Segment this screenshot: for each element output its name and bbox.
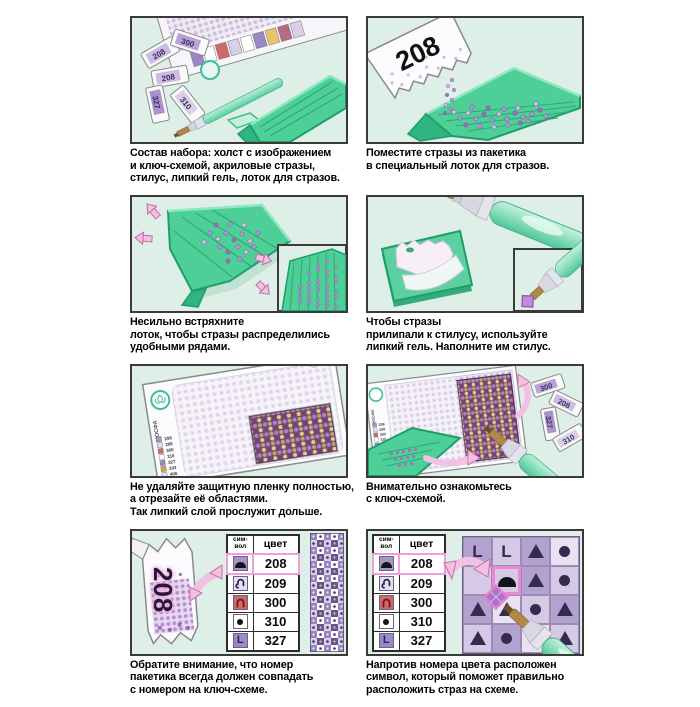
key-row-209: 209 <box>227 574 299 594</box>
match-arrow-icon <box>188 561 224 601</box>
letter-l-icon: L <box>237 635 244 646</box>
scheme-strip <box>310 533 344 652</box>
letter-l-icon: L <box>530 630 540 647</box>
pour-beads-illustration: 208 <box>368 18 582 142</box>
step-panel-3-shake-tray <box>130 195 348 313</box>
dot-icon <box>501 633 512 644</box>
key-row-310: 310 <box>373 612 445 631</box>
protective-film-illustration: МОСФА 208 209 300 310 327 333 406 550 <box>132 366 346 476</box>
match-arrow-icon <box>442 547 492 581</box>
key-row-209: 209 <box>373 574 445 594</box>
diamond-bead-icon <box>522 295 534 307</box>
key-table-header-color: цвет <box>399 535 445 554</box>
caption-step-7: Обратите внимание, что номер пакетика вс… <box>130 659 356 697</box>
caption-step-3: Несильно встряхните лоток, чтобы стразы … <box>130 316 356 354</box>
triangle-icon <box>557 602 573 616</box>
study-key-illustration: МОСФА 208 209 300 310 327 333 406 550 <box>368 366 582 476</box>
instruction-sheet: 208 300 208 327 <box>130 16 590 707</box>
caption-step-1: Состав набора: холст с изображением и кл… <box>130 147 356 185</box>
step-panel-4-glue-gel <box>366 195 584 313</box>
kit-contents-illustration: 208 300 208 327 <box>132 18 346 142</box>
key-row-208: 208 <box>373 554 445 574</box>
row-3: МОСФА 208 209 300 310 327 333 406 550 <box>130 364 590 519</box>
letter-l-icon: L <box>383 635 390 646</box>
key-row-300: 300 <box>227 593 299 612</box>
triangle-icon <box>557 631 573 645</box>
brand-logo-icon <box>201 61 219 79</box>
key-row-327: L 327 <box>227 631 299 651</box>
caption-step-8: Напротив номера цвета расположен символ,… <box>366 659 592 697</box>
hook-icon <box>381 578 392 589</box>
hook-icon <box>235 578 246 589</box>
step-panel-6-study-key: МОСФА 208 209 300 310 327 333 406 550 <box>366 364 584 478</box>
dot-icon <box>530 604 541 615</box>
triangle-icon <box>499 602 515 616</box>
dome-icon <box>498 577 516 587</box>
step-panel-1-kit-contents: 208 300 208 327 <box>130 16 348 144</box>
glue-gel-illustration <box>368 197 582 311</box>
triangle-icon <box>528 573 544 587</box>
key-row-208: 208 <box>227 554 299 574</box>
dot-icon <box>559 575 570 586</box>
color-key-table: сим- вол цвет 208 209 <box>226 534 300 652</box>
key-table-header-symbol: сим- вол <box>227 535 253 554</box>
dot-icon <box>237 619 243 625</box>
svg-text:208: 208 <box>378 422 384 427</box>
svg-text:209: 209 <box>379 427 385 432</box>
dot-icon <box>559 546 570 557</box>
dome-icon <box>235 562 246 568</box>
dome-icon <box>381 562 392 568</box>
letter-l-icon: L <box>501 543 511 560</box>
highlighted-cell <box>492 566 521 595</box>
caption-step-4: Чтобы стразы прилипали к стилусу, исполь… <box>366 316 592 354</box>
inset-tray-rows <box>278 245 346 311</box>
brand-logo-icon <box>369 387 383 401</box>
arch-icon <box>381 597 392 608</box>
svg-text:300: 300 <box>380 432 386 437</box>
step-panel-7-packet-matches-key: 208 сим- вол цвет 208 <box>130 529 348 656</box>
svg-text:406: 406 <box>170 470 179 475</box>
caption-step-5: Не удаляйте защитную пленку полностью, а… <box>130 481 356 519</box>
key-table-header-symbol: сим- вол <box>373 535 399 554</box>
shake-tray-illustration <box>132 197 346 311</box>
triangle-icon <box>528 544 544 558</box>
step-panel-8-symbol-placement: сим- вол цвет 208 209 <box>366 529 584 656</box>
dot-icon <box>383 619 389 625</box>
arch-icon <box>235 597 246 608</box>
key-table-header-color: цвет <box>253 535 299 554</box>
color-key-table: сим- вол цвет 208 209 <box>372 534 446 652</box>
key-row-310: 310 <box>227 612 299 631</box>
step-panel-2-pour-beads: 208 <box>366 16 584 144</box>
gel-tear-hole <box>406 247 414 252</box>
key-row-327: L 327 <box>373 631 445 651</box>
key-row-300: 300 <box>373 593 445 612</box>
canvas-sheet: МОСФА 208 209 300 310 327 333 406 550 <box>143 366 346 476</box>
row-1: 208 300 208 327 <box>130 16 590 185</box>
row-2: Несильно встряхните лоток, чтобы стразы … <box>130 195 590 354</box>
row-4: 208 сим- вол цвет 208 <box>130 529 590 697</box>
caption-step-6: Внимательно ознакомьтесь с ключ-схемой. <box>366 481 592 506</box>
step-panel-5-protective-film: МОСФА 208 209 300 310 327 333 406 550 <box>130 364 348 478</box>
caption-step-2: Поместите стразы из пакетика в специальн… <box>366 147 592 172</box>
triangle-icon <box>470 602 486 616</box>
triangle-icon <box>470 631 486 645</box>
packet-number-label: 208 <box>147 567 178 613</box>
